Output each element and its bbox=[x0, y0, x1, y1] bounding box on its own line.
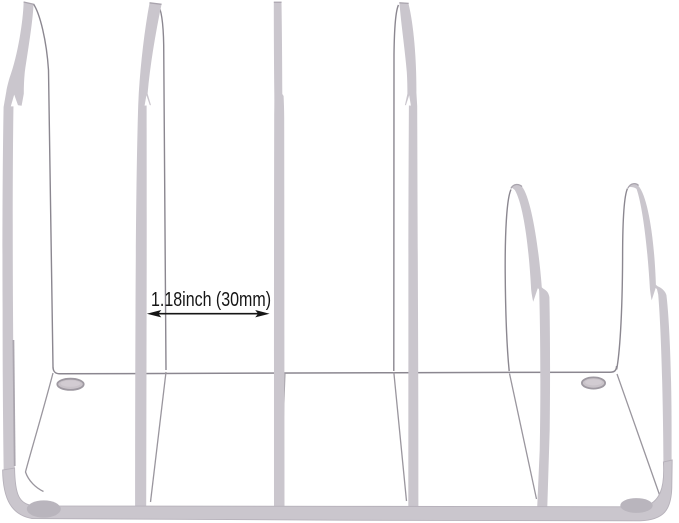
svg-text:1.18inch (30mm): 1.18inch (30mm) bbox=[151, 288, 271, 310]
